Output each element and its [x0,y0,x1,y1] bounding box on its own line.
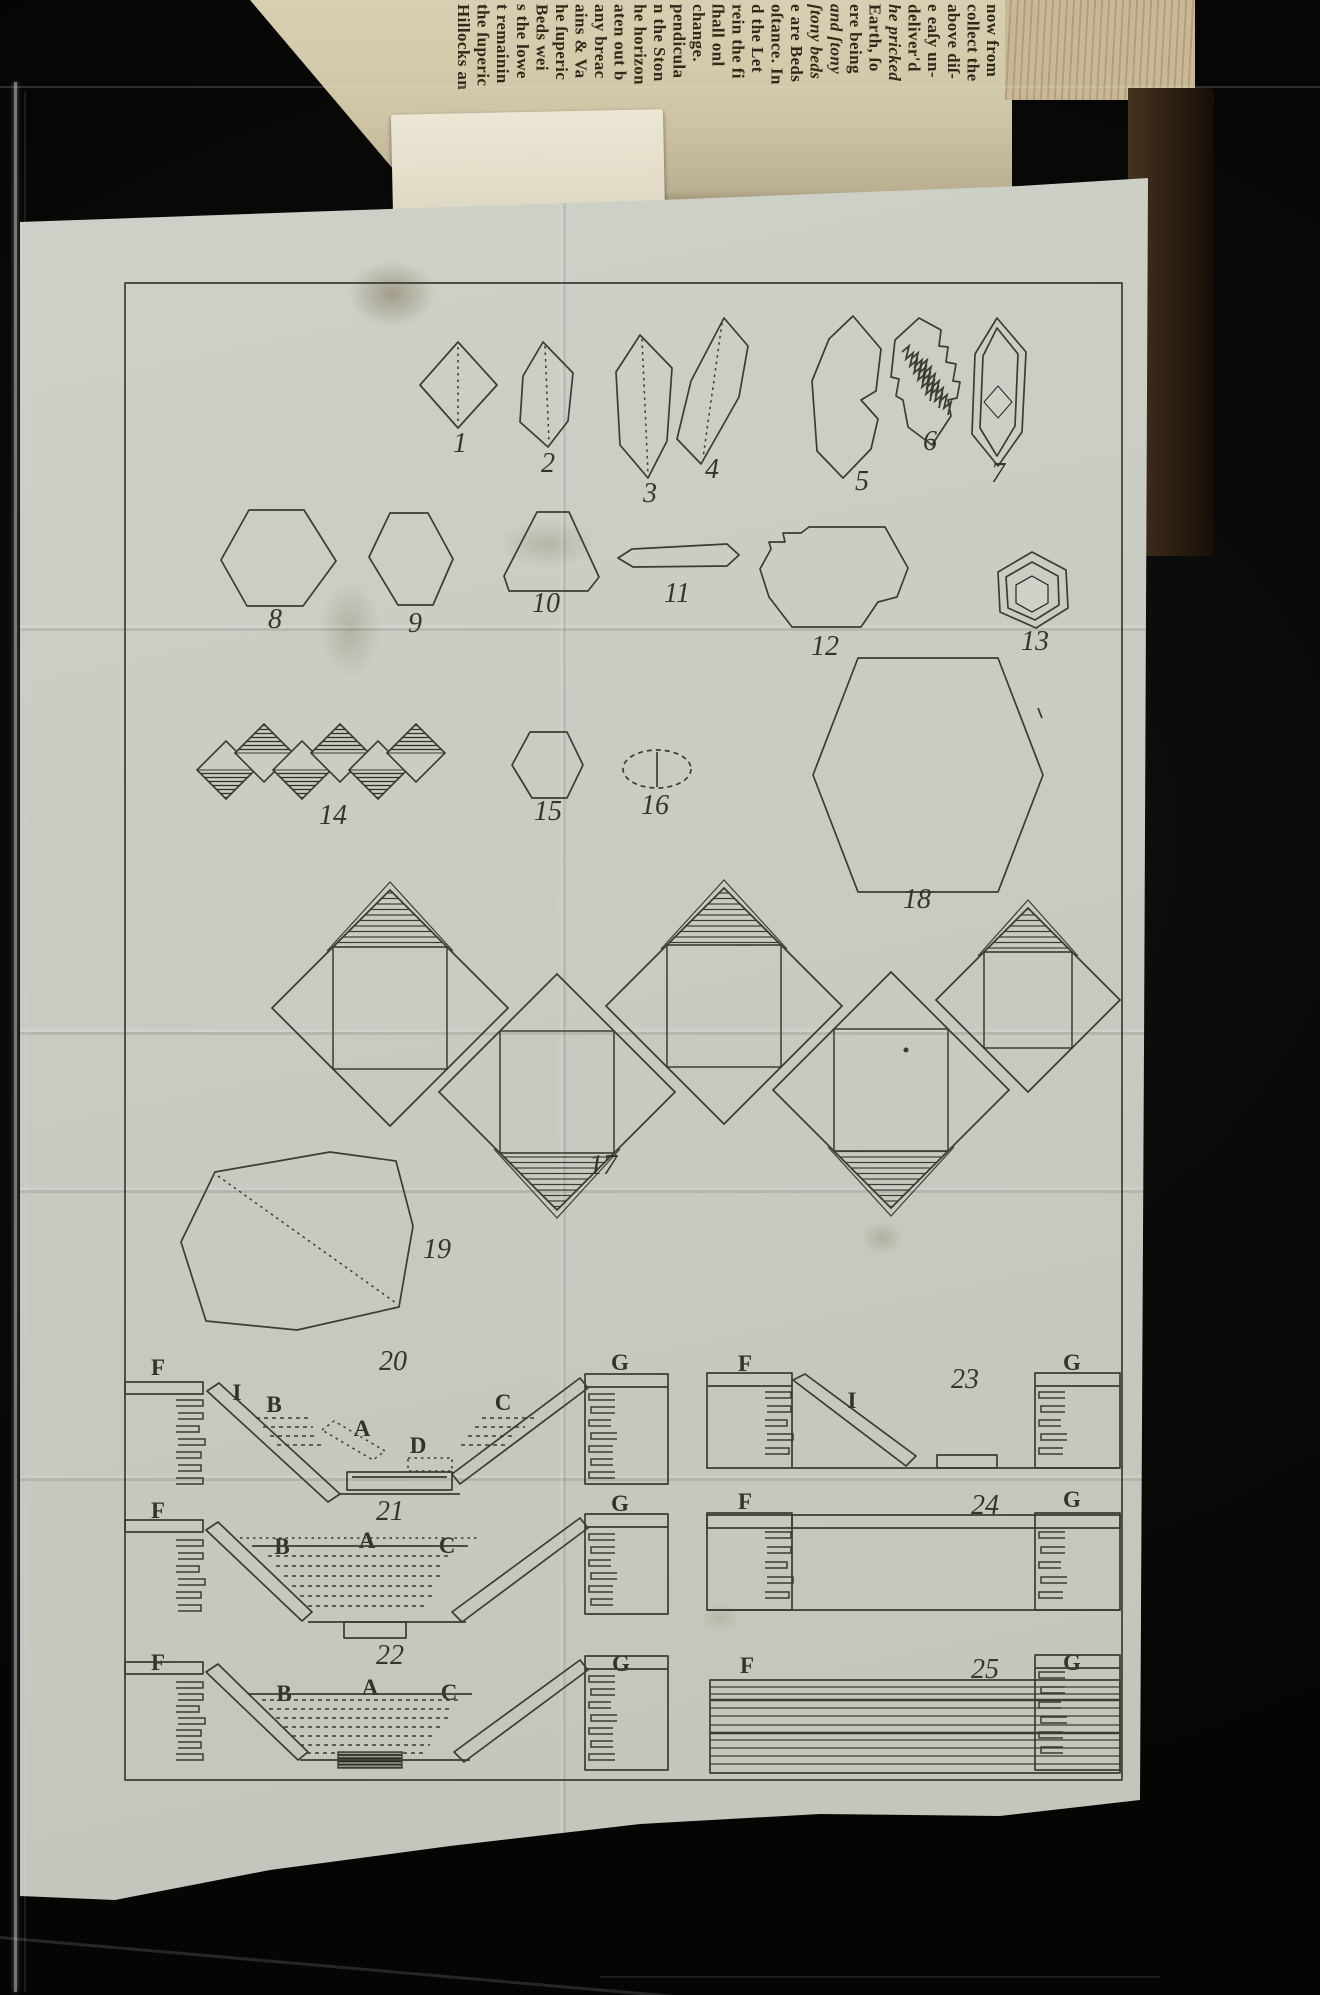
ladder-rung [591,1547,615,1553]
figure-15: 15 [512,732,583,827]
ladder-rung [589,1702,611,1708]
figure-3-number: 3 [642,478,657,509]
plate-engraving: 1 2 3 4 5 6 7 [0,0,1320,1995]
figure-9-number: 9 [408,608,422,639]
figure-12-number: 12 [811,631,839,662]
ladder-rung [178,1694,203,1700]
ladder-rung [765,1592,789,1598]
figure-16-number: 16 [641,790,669,821]
crystal-core [834,1029,948,1151]
ladder-rung [1039,1702,1061,1708]
fig25-label-F: F [740,1653,754,1678]
ladder-rung [1039,1448,1063,1454]
fig20-label-B: B [266,1392,281,1417]
figure-23-number: 23 [951,1364,979,1395]
figure-5: 5 [812,316,881,497]
ladder-rung [591,1689,615,1695]
ladder-rung [178,1439,205,1445]
ladder-rung [1039,1592,1063,1598]
ladder-rung [589,1560,611,1566]
ladder-rung [589,1728,613,1734]
ladder-rung [176,1566,199,1572]
figure-21: 21 F B A C G [125,1491,668,1638]
ladder-rung [178,1718,205,1724]
ladder-rung [767,1577,793,1583]
figure-2: 2 [520,342,573,479]
figure-23: 23 F I G [707,1350,1120,1468]
figure-6-number: 6 [923,426,937,457]
figure-7: 7 [972,318,1026,489]
figure-7-number: 7 [991,458,1006,489]
ladder-rung [176,1730,201,1736]
ladder-rung [176,1706,199,1712]
fig21-label-G: G [611,1491,629,1516]
figure-19-number: 19 [423,1234,451,1265]
ladder-rung [589,1472,615,1478]
ladder-rung [176,1540,203,1546]
crystal-core [984,952,1072,1048]
figure-24-number: 24 [971,1490,999,1521]
crystal-hatch-corner [333,890,447,947]
fig22-label-G: G [612,1651,630,1676]
fig23-label-G: G [1063,1350,1081,1375]
figure-1: 1 [420,342,497,459]
fig20-label-G: G [611,1350,629,1375]
figure-4-number: 4 [705,454,719,485]
chain-diamond-hatch [349,770,407,799]
ladder-rung [178,1579,205,1585]
ladder-rung [178,1413,203,1419]
figure-18: 18 [813,658,1043,915]
ladder-rung [589,1394,615,1400]
figure-19: 19 [181,1152,451,1330]
fig22-label-A: A [362,1675,379,1700]
ladder-rung [591,1459,613,1465]
ladder-rung [589,1534,615,1540]
ladder-rung [176,1592,201,1598]
figure-15-number: 15 [534,796,562,827]
figure-16: 16 [623,750,691,821]
ladder-rung [591,1715,617,1721]
ladder-rung [178,1742,201,1748]
fig23-label-I: I [848,1388,857,1413]
ladder-rung [1039,1392,1065,1398]
ladder-rung [1039,1562,1061,1568]
ladder-rung [176,1682,203,1688]
figure-8-number: 8 [268,604,282,635]
ladder-rung [1041,1406,1065,1412]
crystal-core [500,1031,614,1153]
fig24-label-F: F [738,1489,752,1514]
ladder-rung [176,1400,203,1406]
ladder-rung [176,1754,203,1760]
crystal-hatch-corner [667,888,781,945]
crystal-hatch-corner [984,908,1072,952]
fig20-label-D: D [410,1433,427,1458]
ladder-rung [1039,1672,1065,1678]
fig25-label-G: G [1063,1650,1081,1675]
figure-2-number: 2 [541,448,555,479]
figure-13: 13 [998,552,1068,657]
figure-12: 12 [760,527,908,662]
ladder-rung [1039,1532,1065,1538]
ladder-rung [765,1420,787,1426]
ladder-rung [176,1426,199,1432]
figure-13-number: 13 [1021,626,1049,657]
ladder-rung [767,1406,791,1412]
chain-diamond-hatch [197,770,255,799]
photo-scene: now from collect the above diſ- e eaſy u… [0,0,1320,1995]
ladder-rung [765,1532,791,1538]
ladder-rung [767,1434,793,1440]
figure-1-number: 1 [453,428,467,459]
figure-10-number: 10 [532,588,560,619]
fig20-label-C: C [495,1390,512,1415]
ladder-rung [1041,1547,1065,1553]
figure-21-number: 21 [376,1496,404,1527]
ladder-rung [591,1741,613,1747]
ladder-rung [1039,1420,1061,1426]
ladder-rung [178,1465,201,1471]
ladder-rung [591,1433,617,1439]
figure-9: 9 [369,513,453,639]
fig24-label-G: G [1063,1487,1081,1512]
ladder-rung [765,1562,787,1568]
ladder-rung [591,1573,617,1579]
fig20-label-F: F [151,1355,165,1380]
chain-diamond-hatch [387,724,445,753]
chain-diamond-hatch [235,724,293,753]
ladder-rung [1041,1577,1067,1583]
ladder-rung [591,1407,615,1413]
ladder-rung [589,1586,613,1592]
ladder-rung [765,1392,791,1398]
ladder-rung [591,1599,613,1605]
figure-11: 11 [618,544,739,609]
chain-diamond-hatch [273,770,331,799]
chain-diamond-hatch [311,724,369,753]
ladder-rung [1041,1687,1065,1693]
figure-8: 8 [221,510,336,635]
ladder-rung [765,1448,789,1454]
ladder-rung [176,1478,203,1484]
figure-17-number: 17 [589,1150,618,1181]
figure-22-number: 22 [376,1640,404,1671]
ladder-rung [589,1754,615,1760]
ladder-rung [767,1547,791,1553]
figure-4: 4 [677,318,748,485]
crystal-core [667,945,781,1067]
ladder-rung [589,1420,611,1426]
ladder-rung [1041,1717,1067,1723]
ladder-rung [178,1605,201,1611]
figure-17 [272,880,1120,1218]
figure-18-number: 18 [903,884,931,915]
ladder-rung [589,1446,613,1452]
figure-20: 20 F I B A D C G [125,1346,668,1502]
figure-10: 10 [504,512,599,619]
figure-22: 22 F B A C G [125,1640,668,1770]
figure-14 [197,724,445,799]
figure-25: 25 F G [710,1650,1120,1773]
ladder-rung [178,1553,203,1559]
figure-5-number: 5 [855,466,869,497]
fig22-label-C: C [441,1680,458,1705]
ink-speck [904,1048,909,1053]
fig20-label-I: I [233,1380,242,1405]
figure-20-number: 20 [379,1346,407,1377]
figure-14-number: 14 [319,800,347,831]
ladder-rung [176,1452,201,1458]
crystal-hatch-corner [834,1151,948,1208]
fig21-label-A: A [359,1528,376,1553]
figure-11-number: 11 [664,578,690,609]
zigzag-hatch [920,360,951,415]
crystal-core [333,947,447,1069]
ladder-rung [589,1676,615,1682]
ladder-rung [1041,1434,1067,1440]
figure-3: 3 [616,335,672,509]
figure-6: 6 [891,318,960,457]
